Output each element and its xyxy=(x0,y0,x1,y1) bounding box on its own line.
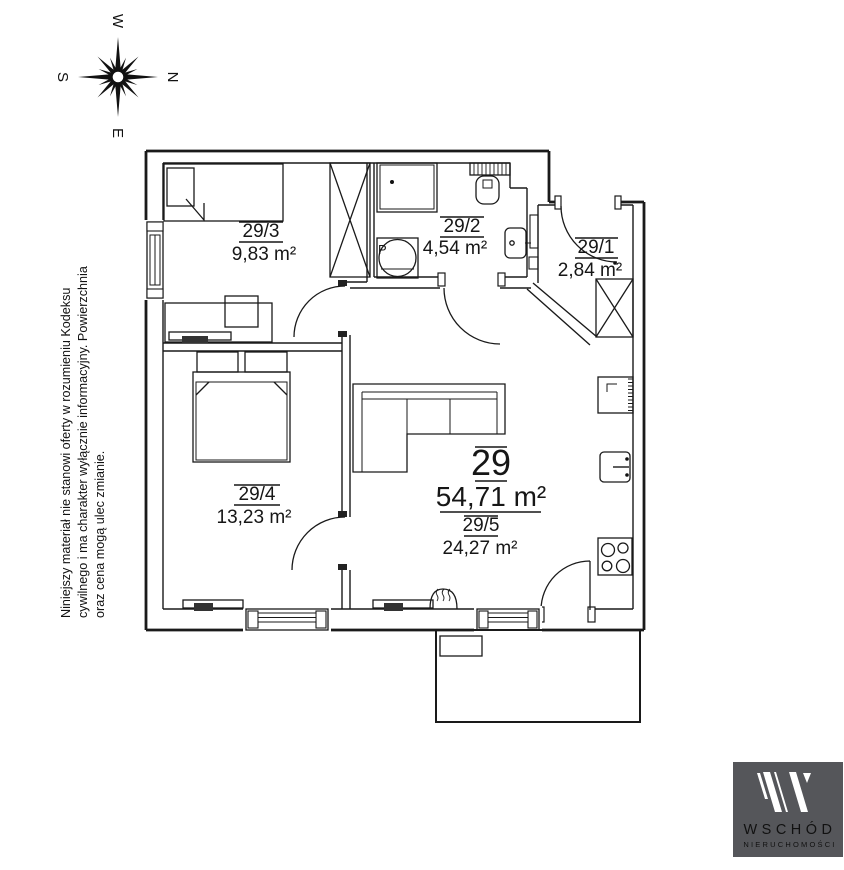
desk xyxy=(165,303,272,342)
compass-letter-top: W xyxy=(109,14,126,29)
room3-door-arc xyxy=(294,286,345,337)
room4-door-arc xyxy=(292,517,345,570)
chair xyxy=(225,296,258,327)
compass-letter-bottom: E xyxy=(109,128,126,138)
bathroom-door-arc xyxy=(444,288,500,344)
walls-exterior xyxy=(146,151,644,630)
floor-plan-canvas: W N E S Niniejszy materiał nie stanowi o… xyxy=(0,0,844,870)
compass-rose: W N E S xyxy=(54,14,181,138)
unit-total-area: 54,71 m² xyxy=(436,481,547,512)
radiator-valve xyxy=(182,336,208,343)
compass-letter-left: S xyxy=(54,72,71,82)
single-bed xyxy=(164,164,283,221)
radiator-valve xyxy=(384,603,403,611)
window-left xyxy=(143,220,168,300)
room-id: 29/4 xyxy=(239,484,276,505)
toilet xyxy=(470,163,510,204)
label-29-1: 29/1 2,84 m² xyxy=(558,237,622,281)
duct xyxy=(530,215,538,248)
label-29-3: 29/3 9,83 m² xyxy=(232,221,296,265)
fridge xyxy=(598,377,633,413)
pillow xyxy=(167,168,194,206)
wardrobe-crossed xyxy=(330,163,370,277)
label-29-2: 29/2 4,54 m² xyxy=(423,216,487,259)
window-bottom-bedroom xyxy=(243,606,331,633)
pillow-left xyxy=(197,352,238,372)
disclaimer-line-2: cywilnego i ma charakter wyłącznie infor… xyxy=(76,266,90,618)
room-labels: 29/3 9,83 m² 29/2 4,54 m² 29/1 2,84 m² 2… xyxy=(217,216,623,559)
blanket-folds xyxy=(196,382,287,395)
label-29-4: 29/4 13,23 m² xyxy=(217,484,292,528)
blanket-fold xyxy=(186,199,204,220)
compass-letter-right: N xyxy=(164,72,181,83)
compass-hub xyxy=(112,71,125,84)
unit-number: 29 xyxy=(471,442,511,483)
disclaimer-line-1: Niniejszy materiał nie stanowi oferty w … xyxy=(59,288,73,618)
hall-wardrobe-crossed xyxy=(596,279,633,337)
room-id: 29/5 xyxy=(463,515,500,536)
heat-waves-icon xyxy=(436,589,450,601)
room-29-4-furniture xyxy=(183,352,290,611)
balcony-door-arc xyxy=(541,561,590,610)
room-area: 24,27 m² xyxy=(443,538,518,559)
window-bottom-living xyxy=(474,606,542,633)
shower xyxy=(377,163,437,212)
room-id: 29/1 xyxy=(578,237,615,258)
entrance-opening xyxy=(557,196,617,209)
room-id: 29/2 xyxy=(444,216,481,237)
balcony xyxy=(436,630,640,722)
floor-plan-page: W N E S Niniejszy materiał nie stanowi o… xyxy=(0,0,844,870)
room-area: 2,84 m² xyxy=(558,260,622,281)
walls-interior xyxy=(163,163,633,609)
mattress xyxy=(196,382,287,460)
cooktop xyxy=(598,538,632,575)
pillow-right xyxy=(245,352,287,372)
brand-logo: WSCHÓD NIERUCHOMOŚCI xyxy=(733,762,843,857)
washer-label: P xyxy=(378,242,387,257)
room-area: 4,54 m² xyxy=(423,238,487,259)
logo-subtitle-text: NIERUCHOMOŚCI xyxy=(743,840,836,849)
disclaimer: Niniejszy materiał nie stanowi oferty w … xyxy=(59,266,107,618)
duct-small xyxy=(529,257,538,269)
room-area: 9,83 m² xyxy=(232,244,296,265)
label-unit: 29 54,71 m² 29/5 24,27 m² xyxy=(436,442,547,559)
room-id: 29/3 xyxy=(243,221,280,242)
kitchen-sink xyxy=(600,452,630,482)
radiator-valve xyxy=(194,603,213,611)
double-bed xyxy=(193,372,290,462)
room-area: 13,23 m² xyxy=(217,507,292,528)
logo-brand-text: WSCHÓD xyxy=(743,821,836,838)
balcony-table xyxy=(440,636,482,656)
disclaimer-line-3: oraz cena mogą ulec zmianie. xyxy=(93,451,107,618)
